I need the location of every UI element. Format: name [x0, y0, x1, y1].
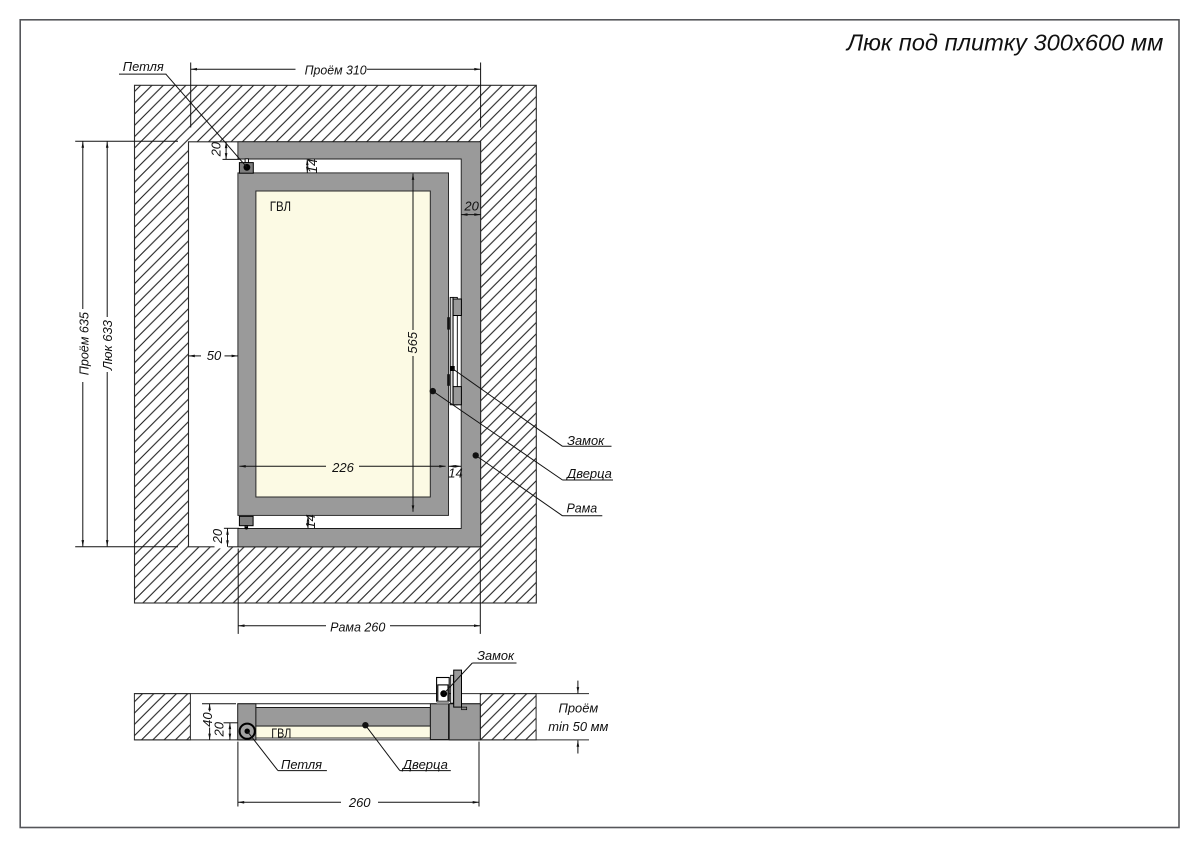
svg-text:20: 20	[463, 198, 479, 213]
svg-text:14: 14	[303, 514, 318, 528]
svg-text:min 50 мм: min 50 мм	[548, 719, 608, 734]
svg-text:Проём 635: Проём 635	[77, 311, 92, 375]
svg-text:20: 20	[210, 528, 225, 544]
svg-text:20: 20	[209, 141, 224, 157]
svg-text:Рама 260: Рама 260	[330, 619, 386, 634]
svg-text:20: 20	[211, 721, 226, 737]
svg-text:565: 565	[405, 331, 420, 353]
svg-text:Петля: Петля	[281, 757, 322, 772]
svg-text:ГВЛ: ГВЛ	[271, 726, 291, 741]
svg-text:ГВЛ: ГВЛ	[270, 199, 291, 214]
svg-text:226: 226	[331, 460, 354, 475]
svg-text:14: 14	[448, 466, 462, 481]
svg-text:50: 50	[207, 348, 222, 363]
svg-text:Дверца: Дверца	[565, 466, 612, 481]
svg-text:Замок: Замок	[567, 433, 605, 448]
svg-text:14: 14	[305, 159, 320, 173]
svg-text:Замок: Замок	[477, 648, 515, 663]
svg-text:Люк под плитку 300х600 мм: Люк под плитку 300х600 мм	[845, 30, 1164, 56]
svg-text:Дверца: Дверца	[401, 757, 448, 772]
svg-text:260: 260	[348, 795, 371, 810]
svg-text:Петля: Петля	[123, 59, 164, 74]
svg-text:Люк 633: Люк 633	[100, 319, 115, 371]
svg-text:Проём: Проём	[559, 700, 599, 715]
svg-text:Рама: Рама	[567, 500, 598, 515]
svg-text:Проём 310: Проём 310	[305, 63, 368, 78]
